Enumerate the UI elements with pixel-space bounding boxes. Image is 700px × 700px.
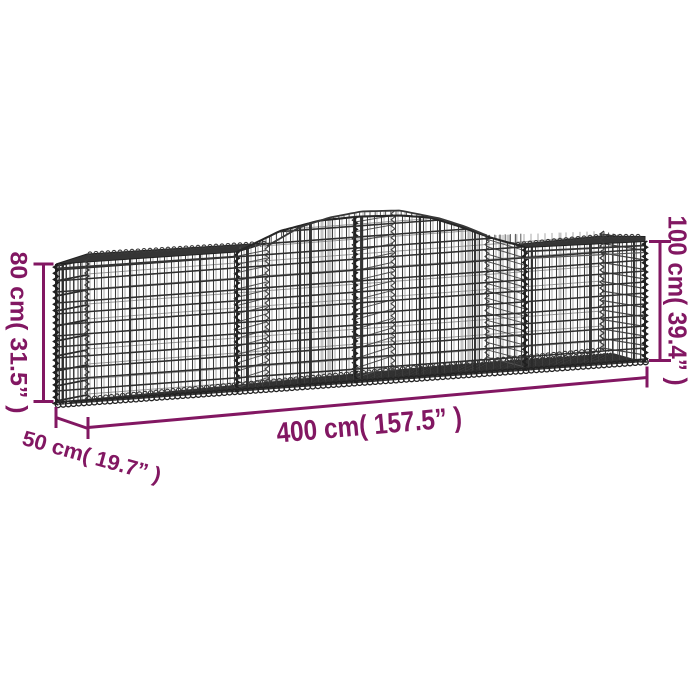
svg-text:50 cm( 19.7” ): 50 cm( 19.7” ) — [20, 426, 164, 487]
svg-text:80 cm( 31.5” ): 80 cm( 31.5” ) — [5, 252, 32, 414]
svg-text:100 cm( 39.4” ): 100 cm( 39.4” ) — [663, 216, 693, 386]
